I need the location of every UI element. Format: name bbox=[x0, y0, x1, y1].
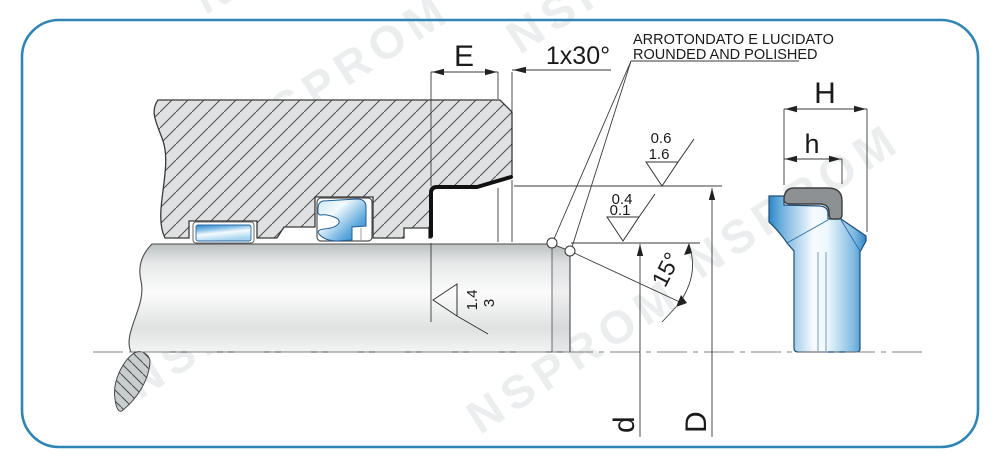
note-english: ROUNDED AND POLISHED bbox=[633, 47, 818, 63]
rod-seal bbox=[193, 222, 254, 243]
roughness-rod-bottom: 0.1 bbox=[610, 202, 631, 219]
roughness-face-top: 1.4 bbox=[464, 290, 481, 311]
dim-bore-diameter-label: D bbox=[680, 411, 713, 433]
dim-H-label: H bbox=[814, 77, 836, 110]
rounded-edge-marker bbox=[565, 246, 575, 256]
rounded-edge-marker bbox=[547, 238, 557, 248]
roughness-bore-top: 0.6 bbox=[651, 130, 672, 147]
wiper-seal bbox=[317, 198, 372, 241]
polished-edge-highlight bbox=[431, 177, 511, 236]
dim-rod-diameter-label: d bbox=[608, 416, 641, 433]
dim-h-label: h bbox=[804, 129, 819, 159]
note-italian: ARROTONDATO E LUCIDATO bbox=[633, 32, 834, 48]
seal-profile bbox=[769, 188, 866, 352]
technical-drawing-page: NSPROM NSPROM NSPROM NSPROM NSPROM NSPRO… bbox=[0, 0, 1000, 466]
dim-E-label: E bbox=[454, 40, 474, 73]
roughness-bore-bottom: 1.6 bbox=[649, 146, 670, 163]
seal-elastomer-body bbox=[769, 196, 866, 352]
dim-chamfer-label: 1x30° bbox=[546, 42, 610, 70]
rod-end-chamfer-band bbox=[552, 244, 570, 352]
roughness-face-bottom: 3 bbox=[481, 299, 498, 307]
technical-drawing: NSPROM NSPROM NSPROM NSPROM NSPROM NSPRO… bbox=[0, 0, 1000, 466]
